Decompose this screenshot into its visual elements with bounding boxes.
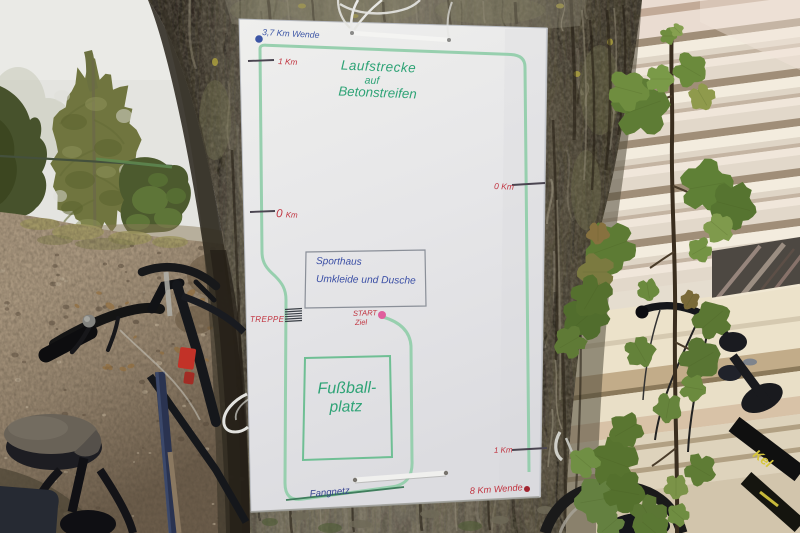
svg-text:Ziel: Ziel bbox=[354, 318, 368, 327]
svg-text:0 Km: 0 Km bbox=[494, 181, 514, 192]
svg-text:Laufstrecke: Laufstrecke bbox=[341, 58, 417, 76]
svg-text:START: START bbox=[353, 308, 379, 318]
svg-text:platz: platz bbox=[328, 398, 362, 416]
svg-text:Fußball-: Fußball- bbox=[317, 379, 376, 397]
svg-text:Umkleide und Dusche: Umkleide und Dusche bbox=[316, 274, 416, 287]
svg-text:TREPPE: TREPPE bbox=[250, 315, 285, 324]
svg-text:0 Km: 0 Km bbox=[276, 208, 298, 221]
svg-text:1 Km: 1 Km bbox=[278, 56, 298, 67]
svg-text:Sporthaus: Sporthaus bbox=[316, 256, 362, 268]
svg-text:1 Km: 1 Km bbox=[494, 445, 513, 455]
svg-text:Betonstreifen: Betonstreifen bbox=[338, 83, 417, 101]
